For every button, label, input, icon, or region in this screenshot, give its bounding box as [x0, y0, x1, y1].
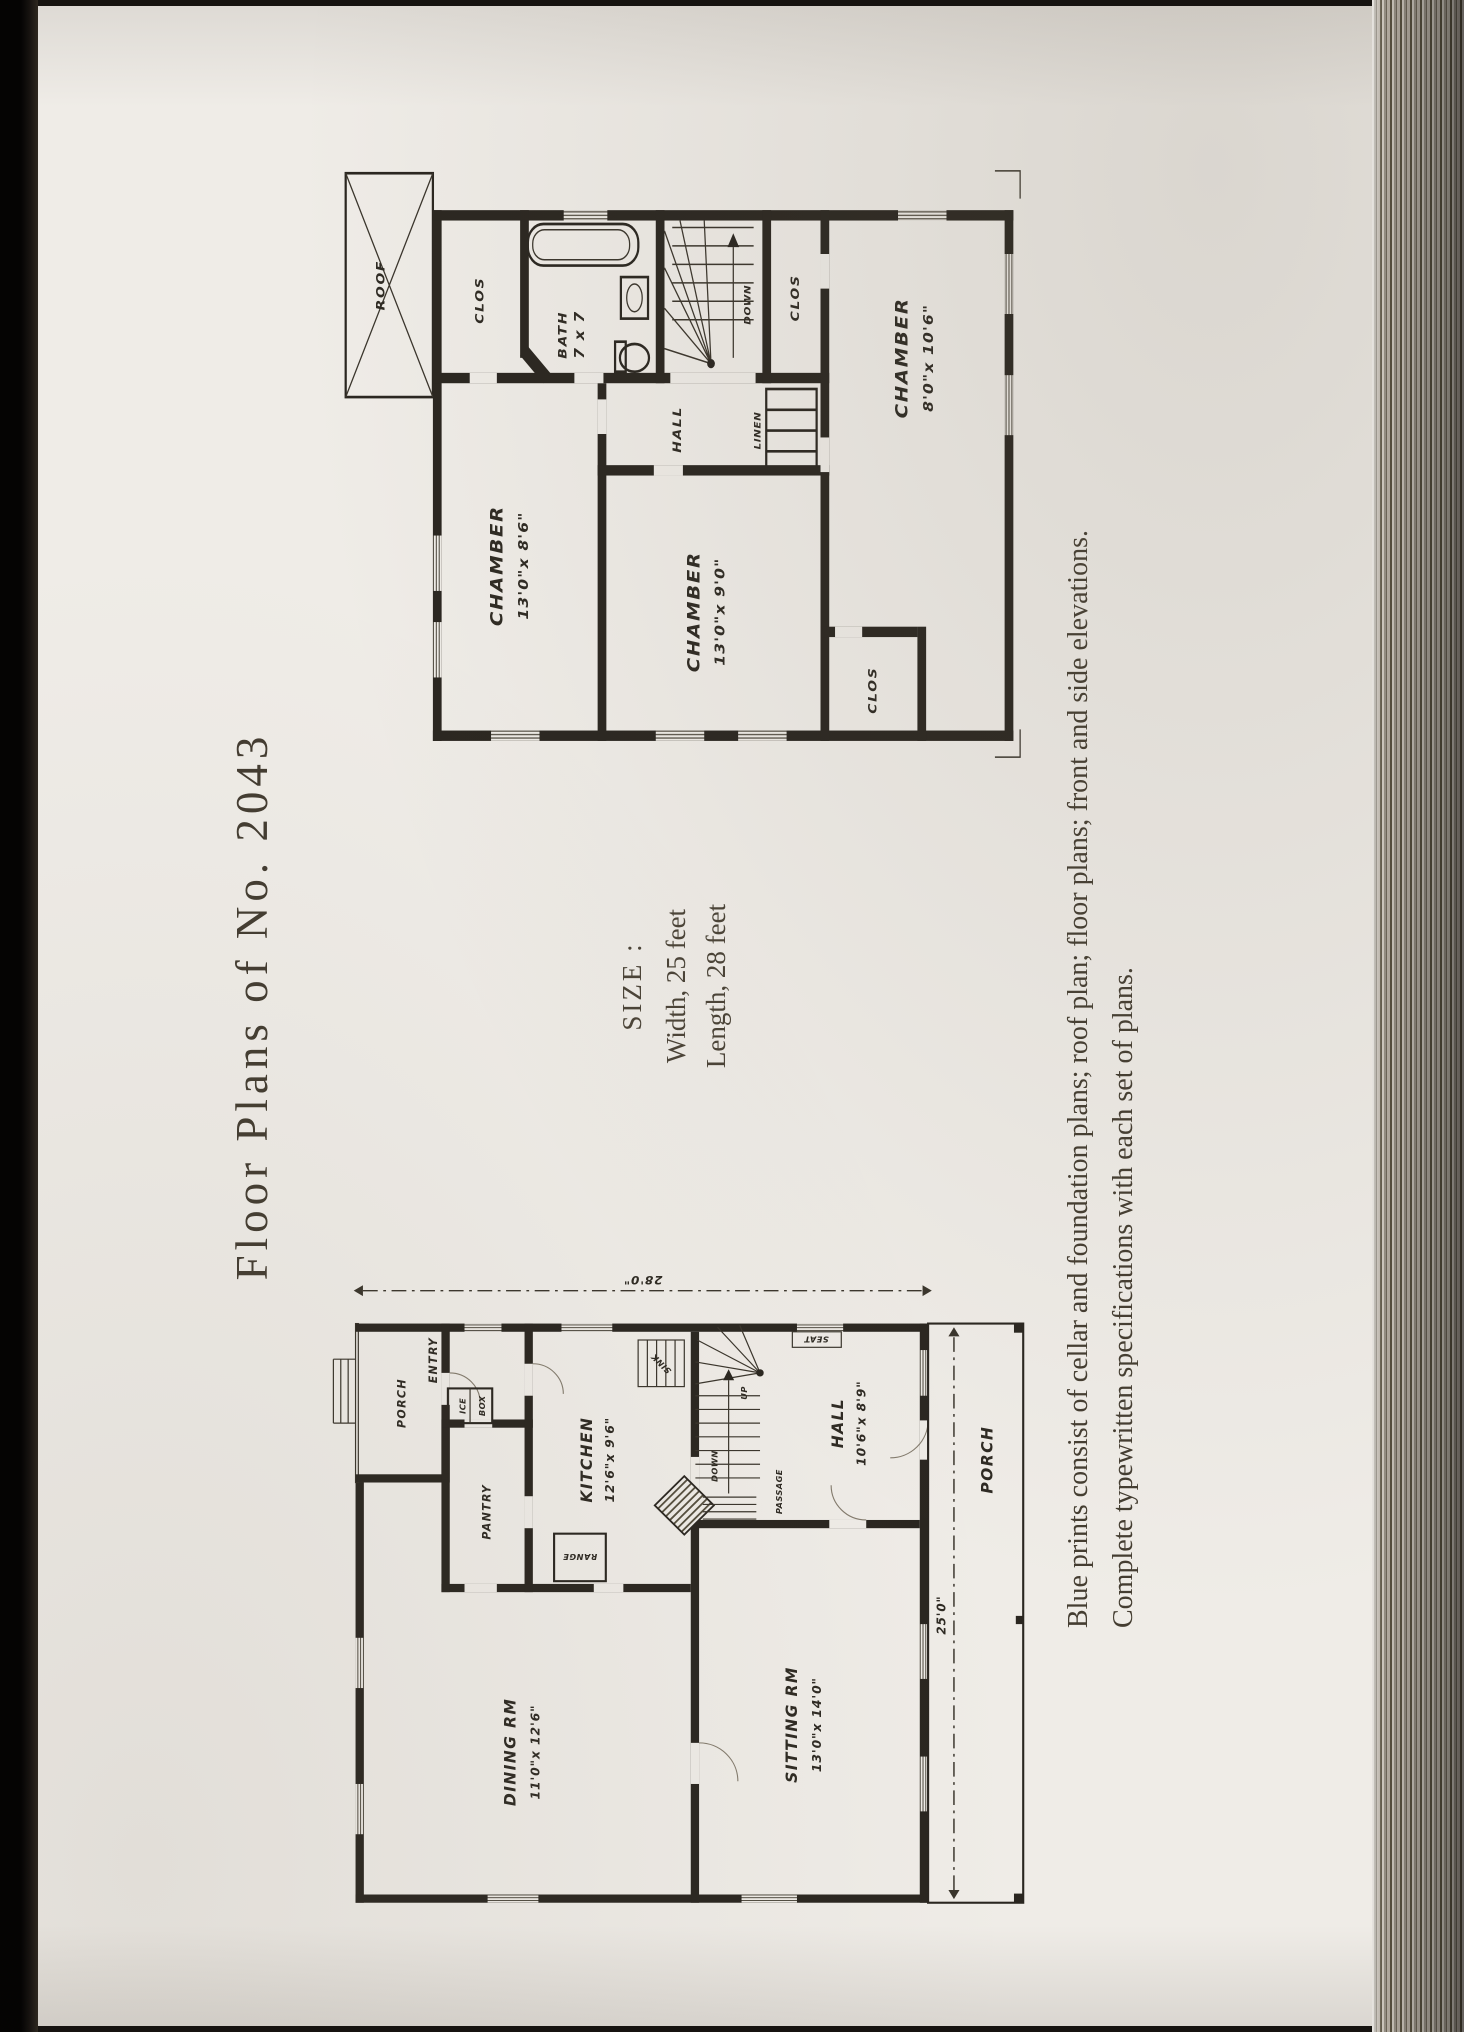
- wall: [920, 1324, 928, 1903]
- window: [433, 622, 442, 677]
- porch-railing: [356, 1324, 359, 1483]
- room-dims-hall: 10'6"x 8'9": [853, 1380, 868, 1465]
- svg-text:BOX: BOX: [477, 1395, 487, 1416]
- door-gap: [465, 1584, 497, 1592]
- room-label-front-porch: PORCH: [979, 1426, 997, 1494]
- wall: [441, 1428, 449, 1592]
- room-dims-bath: 7 x 7: [573, 311, 588, 359]
- room-label-chamber-b: CHAMBER: [685, 551, 704, 672]
- door-gap: [691, 1743, 699, 1784]
- room-dims-kitchen: 12'6"x 9'6": [602, 1417, 617, 1502]
- wall: [917, 627, 926, 741]
- page-title: Floor Plans of No. 2043: [226, 606, 278, 1406]
- door-gap: [470, 373, 497, 383]
- window: [1005, 375, 1014, 435]
- svg-text:ICE: ICE: [457, 1398, 467, 1414]
- toilet-icon: [615, 342, 649, 372]
- window: [742, 1895, 797, 1903]
- room-dims-sitting: 13'0"x 14'0": [809, 1677, 824, 1772]
- room-label-chamber-c: CHAMBER: [893, 297, 912, 418]
- svg-text:RANGE: RANGE: [563, 1552, 598, 1562]
- wall: [520, 210, 529, 358]
- door-gap: [525, 1496, 533, 1528]
- notes-block: Blue prints consist of cellar and founda…: [1056, 268, 1146, 1628]
- wall: [821, 210, 830, 741]
- linen-label: LINEN: [753, 412, 763, 450]
- range-icon: RANGE: [554, 1534, 606, 1582]
- wall: [356, 1474, 446, 1482]
- wall: [691, 1520, 920, 1528]
- room-dims-chamber-b: 13'0"x 9'0": [714, 558, 729, 666]
- door-arc: [699, 1743, 738, 1781]
- room-label-kitchen: KITCHEN: [578, 1417, 596, 1503]
- size-length: Length, 28 feet: [696, 846, 736, 1126]
- svg-text:DOWN: DOWN: [710, 1450, 720, 1482]
- room-dims-dining: 11'0"x 12'6": [527, 1705, 542, 1800]
- window: [561, 1324, 612, 1332]
- window: [738, 731, 786, 741]
- door-gap: [574, 373, 603, 383]
- hall-label: HALL: [671, 406, 685, 453]
- window: [433, 536, 442, 591]
- room-label-chamber-a: CHAMBER: [488, 505, 507, 626]
- room-label-bath: BATH: [557, 311, 571, 359]
- paper-page: Floor Plans of No. 2043 SIZE : Width, 25…: [38, 6, 1372, 2026]
- room-dims-chamber-a: 13'0"x 8'6": [517, 511, 532, 619]
- roof-label: ROOF: [374, 260, 388, 311]
- length-dimension: 28'0": [354, 1273, 932, 1296]
- window: [898, 210, 946, 220]
- sink-icon: SINK: [638, 1340, 684, 1387]
- svg-text:SEAT: SEAT: [803, 1334, 829, 1344]
- rotated-page-content: Floor Plans of No. 2043 SIZE : Width, 25…: [38, 6, 1372, 2026]
- window: [465, 1324, 502, 1332]
- door-gap: [525, 1364, 533, 1396]
- porch-roof: ROOF: [346, 173, 433, 397]
- room-label-rear-porch: PORCH: [395, 1378, 408, 1428]
- book-spine: [0, 0, 38, 2032]
- door-arc: [831, 1485, 866, 1520]
- window: [656, 731, 704, 741]
- linen-closet-icon: [766, 389, 816, 472]
- window: [1005, 254, 1014, 314]
- door-gap: [821, 437, 830, 472]
- wall: [762, 210, 771, 383]
- page-edge-top: [38, 0, 1372, 6]
- window: [920, 1350, 928, 1396]
- window: [491, 731, 539, 741]
- door-gap: [835, 627, 862, 637]
- wall: [356, 1895, 929, 1903]
- page-edge-bottom: [38, 2026, 1372, 2032]
- porch-width-dim: 25'0": [935, 1595, 949, 1634]
- window: [356, 1638, 364, 1688]
- room-label-sitting: SITTING RM: [783, 1666, 801, 1783]
- window: [488, 1895, 539, 1903]
- closet-label: CLOS: [867, 667, 881, 714]
- door-gap: [598, 399, 607, 434]
- door-arc: [533, 1364, 563, 1394]
- window: [920, 1757, 928, 1812]
- bathtub-icon: [528, 224, 638, 266]
- room-label-entry: ENTRY: [427, 1337, 440, 1383]
- svg-text:28'0": 28'0": [623, 1273, 663, 1287]
- front-door-gap: [920, 1420, 928, 1459]
- svg-text:UP: UP: [739, 1386, 749, 1400]
- stairs-up: UP DOWN PASSAGE: [695, 1325, 784, 1519]
- closet-label: CLOS: [789, 274, 803, 321]
- room-dims-chamber-c: 8'0"x 10'6": [922, 304, 937, 412]
- page-stack-edges: [1372, 0, 1464, 2032]
- book-scan-page: Floor Plans of No. 2043 SIZE : Width, 25…: [0, 0, 1464, 2032]
- second-floor-plan: ROOF: [336, 164, 1024, 764]
- note-line-2: Complete typewritten specifications with…: [1101, 268, 1146, 1628]
- stairs-down: DOWN: [664, 221, 753, 369]
- eave-mark: [995, 171, 1020, 199]
- room-label-hall: HALL: [829, 1398, 847, 1448]
- svg-text:DOWN: DOWN: [743, 285, 753, 325]
- svg-text:PASSAGE: PASSAGE: [774, 1469, 784, 1514]
- window: [797, 1324, 843, 1332]
- door-gap: [829, 1520, 866, 1528]
- size-heading: SIZE :: [612, 846, 652, 1126]
- note-line-1: Blue prints consist of cellar and founda…: [1056, 268, 1101, 1628]
- door-gap: [821, 254, 830, 289]
- window: [920, 1624, 928, 1679]
- size-block: SIZE : Width, 25 feet Length, 28 feet: [612, 846, 736, 1126]
- window: [356, 1784, 364, 1834]
- wall: [691, 1332, 699, 1903]
- room-label-dining: DINING RM: [501, 1698, 519, 1806]
- first-floor-plan: ICE BOX RANGE SINK: [326, 1245, 1074, 1921]
- door-gap: [654, 465, 683, 475]
- wall: [598, 465, 830, 475]
- room-label-pantry: PANTRY: [480, 1484, 493, 1540]
- door-gap: [594, 1584, 624, 1592]
- window: [564, 210, 608, 220]
- hall-seat: SEAT: [792, 1332, 841, 1348]
- closet-label: CLOS: [473, 277, 487, 324]
- wall: [598, 383, 607, 741]
- front-porch: 25'0" PORCH: [928, 1324, 1023, 1903]
- wall: [356, 1483, 364, 1903]
- size-width: Width, 25 feet: [656, 846, 696, 1126]
- wall: [656, 210, 665, 383]
- bath-sink-icon: [621, 277, 648, 319]
- stair-opening: [670, 373, 755, 383]
- icebox-icon: ICE BOX: [448, 1388, 492, 1423]
- svg-text:SINK: SINK: [649, 1352, 673, 1376]
- rear-steps: [333, 1359, 355, 1423]
